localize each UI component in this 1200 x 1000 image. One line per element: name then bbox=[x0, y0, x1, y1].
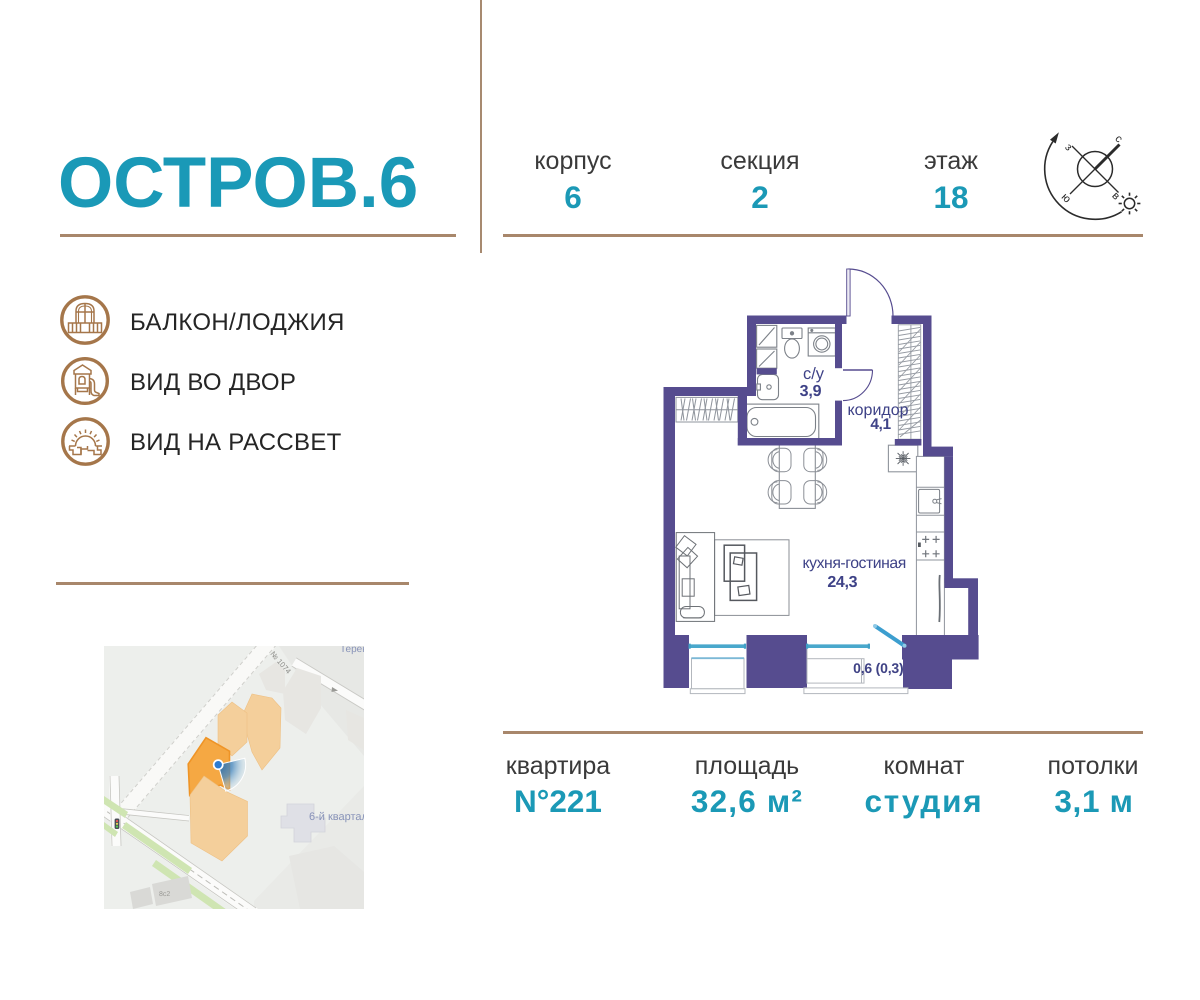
svg-text:6-й квартал: 6-й квартал bbox=[309, 811, 364, 823]
svg-text:с: с bbox=[1112, 133, 1125, 146]
svg-text:8с2: 8с2 bbox=[159, 891, 170, 898]
svg-text:0,6 (0,3): 0,6 (0,3) bbox=[853, 660, 903, 676]
svg-text:24,3: 24,3 bbox=[827, 574, 857, 591]
svg-text:с/у: с/у bbox=[803, 365, 825, 383]
svg-text:4,1: 4,1 bbox=[870, 416, 891, 433]
svg-text:кухня-гостиная: кухня-гостиная bbox=[803, 555, 906, 572]
svg-text:Терек: Терек bbox=[340, 646, 364, 655]
svg-text:3,9: 3,9 bbox=[800, 383, 822, 400]
svg-text:в: в bbox=[1109, 190, 1122, 203]
